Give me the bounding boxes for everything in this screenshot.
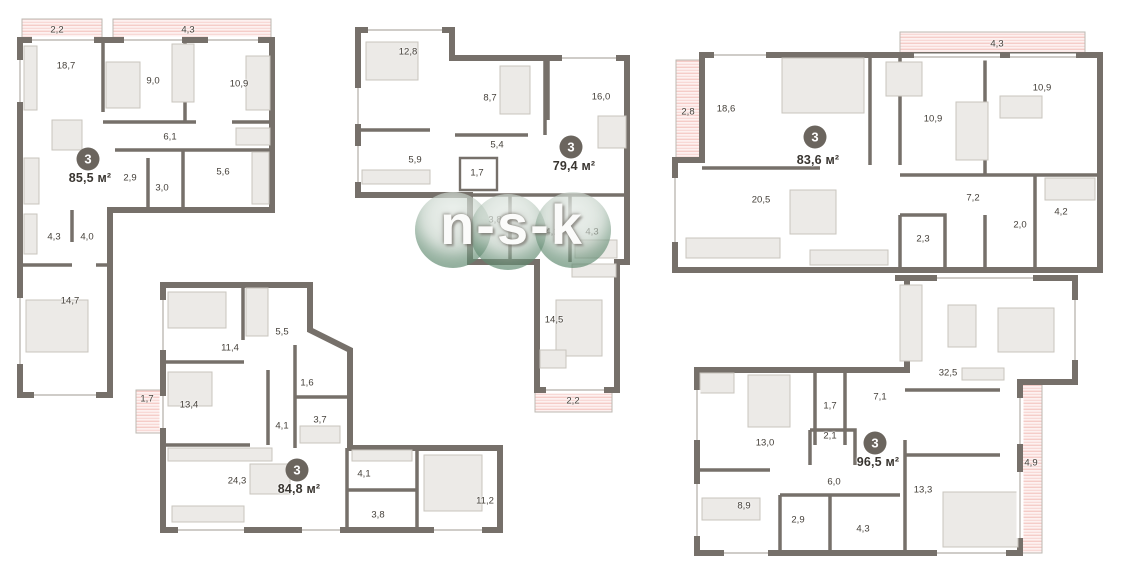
total-area-label: 83,6 м²	[797, 153, 840, 167]
room-area-label: 3,8	[371, 510, 384, 521]
room-area-label: 13,3	[914, 485, 933, 496]
room-area-label: 2,0	[1013, 220, 1026, 231]
plan-3	[675, 32, 1100, 270]
rooms-count-badge: 3	[286, 459, 309, 482]
floor-plan-drawing	[0, 0, 1134, 583]
balcony-area-label: 2,2	[566, 396, 579, 407]
room-area-label: 16,0	[592, 92, 611, 103]
room-area-label: 10,9	[1033, 83, 1052, 94]
room-area-label: 5,9	[408, 155, 421, 166]
room-area-label: 3,0	[155, 183, 168, 194]
room-area-label: 4,1	[357, 469, 370, 480]
rooms-count-badge: 3	[864, 432, 887, 455]
room-area-label: 6,1	[163, 132, 176, 143]
room-area-label: 4,0	[80, 232, 93, 243]
room-area-label: 9,0	[146, 76, 159, 87]
room-area-label: 8,9	[737, 501, 750, 512]
room-area-label: 4,3	[856, 524, 869, 535]
room-area-label: 1,7	[823, 401, 836, 412]
room-area-label: 3,7	[313, 415, 326, 426]
watermark-text: n-s-k	[440, 192, 584, 257]
room-area-label: 5,4	[490, 140, 503, 151]
room-area-label: 10,9	[230, 79, 249, 90]
total-area-label: 84,8 м²	[278, 482, 321, 496]
room-area-label: 14,7	[61, 296, 80, 307]
plan-5	[697, 278, 1075, 553]
room-area-label: 2,9	[791, 515, 804, 526]
room-area-label: 4,1	[275, 421, 288, 432]
room-area-label: 7,2	[966, 193, 979, 204]
room-area-label: 11,2	[476, 496, 494, 507]
room-area-label: 18,7	[57, 61, 76, 72]
room-area-label: 8,7	[483, 93, 496, 104]
room-area-label: 5,6	[216, 167, 229, 178]
balcony-area-label: 2,8	[681, 107, 694, 118]
rooms-count-badge: 3	[77, 148, 100, 171]
balcony-area-label: 2,2	[50, 25, 63, 36]
balcony-area-label: 4,9	[1024, 458, 1037, 469]
room-area-label: 2,9	[123, 173, 136, 184]
room-area-label: 10,9	[924, 114, 943, 125]
room-area-label: 12,8	[399, 47, 418, 58]
room-area-label: 14,5	[545, 315, 564, 326]
room-area-label: 13,0	[756, 438, 775, 449]
room-area-label: 2,3	[916, 234, 929, 245]
room-area-label: 18,6	[717, 104, 736, 115]
rooms-count-badge: 3	[804, 126, 827, 149]
room-area-label: 7,1	[873, 392, 886, 403]
room-area-label: 4,2	[1054, 207, 1067, 218]
room-area-label: 13,4	[180, 400, 199, 411]
floor-plan-sheet: 2,2 4,3 18,7 9,0 10,9 6,1 2,9 3,0 5,6 4,…	[0, 0, 1134, 583]
balcony-area-label: 4,3	[990, 39, 1003, 50]
room-area-label: 20,5	[752, 195, 771, 206]
room-area-label: 5,5	[275, 327, 288, 338]
total-area-label: 96,5 м²	[857, 455, 900, 469]
rooms-count-badge: 3	[560, 136, 583, 159]
room-area-label: 11,4	[221, 343, 239, 354]
room-area-label: 6,0	[827, 477, 840, 488]
balcony-area-label: 4,3	[181, 25, 194, 36]
room-area-label: 1,7	[470, 168, 483, 179]
room-area-label: 2,1	[823, 431, 836, 442]
total-area-label: 85,5 м²	[69, 171, 112, 185]
room-area-label: 1,6	[300, 378, 313, 389]
room-area-label: 4,3	[47, 232, 60, 243]
balcony-area-label: 1,7	[140, 394, 153, 405]
room-area-label: 24,3	[228, 476, 247, 487]
total-area-label: 79,4 м²	[553, 159, 596, 173]
room-area-label: 32,5	[939, 368, 958, 379]
